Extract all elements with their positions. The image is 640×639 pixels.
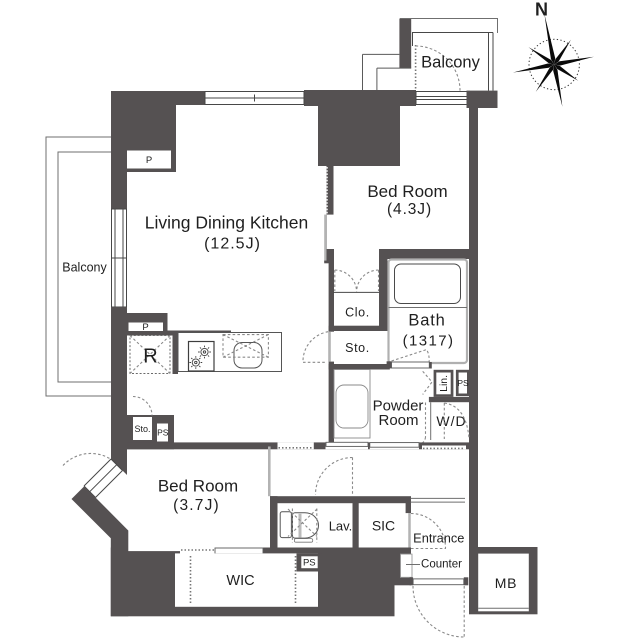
svg-text:Sto.: Sto. xyxy=(345,341,370,355)
svg-text:Sto.: Sto. xyxy=(134,424,150,434)
svg-text:PS: PS xyxy=(303,558,316,569)
svg-text:Bath: Bath xyxy=(408,312,445,330)
svg-text:Lin.: Lin. xyxy=(438,375,450,392)
svg-text:Lav.: Lav. xyxy=(329,519,353,534)
svg-text:WIC: WIC xyxy=(226,573,254,589)
svg-text:PS: PS xyxy=(157,428,169,438)
svg-text:Living Dining Kitchen: Living Dining Kitchen xyxy=(145,213,308,233)
svg-text:PS: PS xyxy=(457,378,469,388)
svg-text:(4.3J): (4.3J) xyxy=(387,201,432,218)
svg-text:P: P xyxy=(142,322,148,333)
svg-text:SIC: SIC xyxy=(372,518,395,534)
svg-text:R: R xyxy=(143,346,157,368)
svg-text:Balcony: Balcony xyxy=(62,261,107,275)
svg-text:P: P xyxy=(146,155,152,166)
svg-text:(1317): (1317) xyxy=(403,333,455,350)
svg-text:Entrance: Entrance xyxy=(413,531,464,546)
svg-text:(12.5J): (12.5J) xyxy=(204,236,261,253)
svg-text:Bed Room: Bed Room xyxy=(158,477,238,496)
svg-text:MB: MB xyxy=(495,575,518,591)
svg-text:Balcony: Balcony xyxy=(421,54,480,72)
svg-text:Counter: Counter xyxy=(421,559,462,571)
svg-text:Clo.: Clo. xyxy=(345,305,370,319)
svg-text:Room: Room xyxy=(378,412,418,429)
svg-text:(3.7J): (3.7J) xyxy=(173,497,220,514)
svg-text:N: N xyxy=(535,0,548,20)
svg-text:Bed Room: Bed Room xyxy=(367,182,447,201)
svg-text:W/D: W/D xyxy=(436,413,466,429)
